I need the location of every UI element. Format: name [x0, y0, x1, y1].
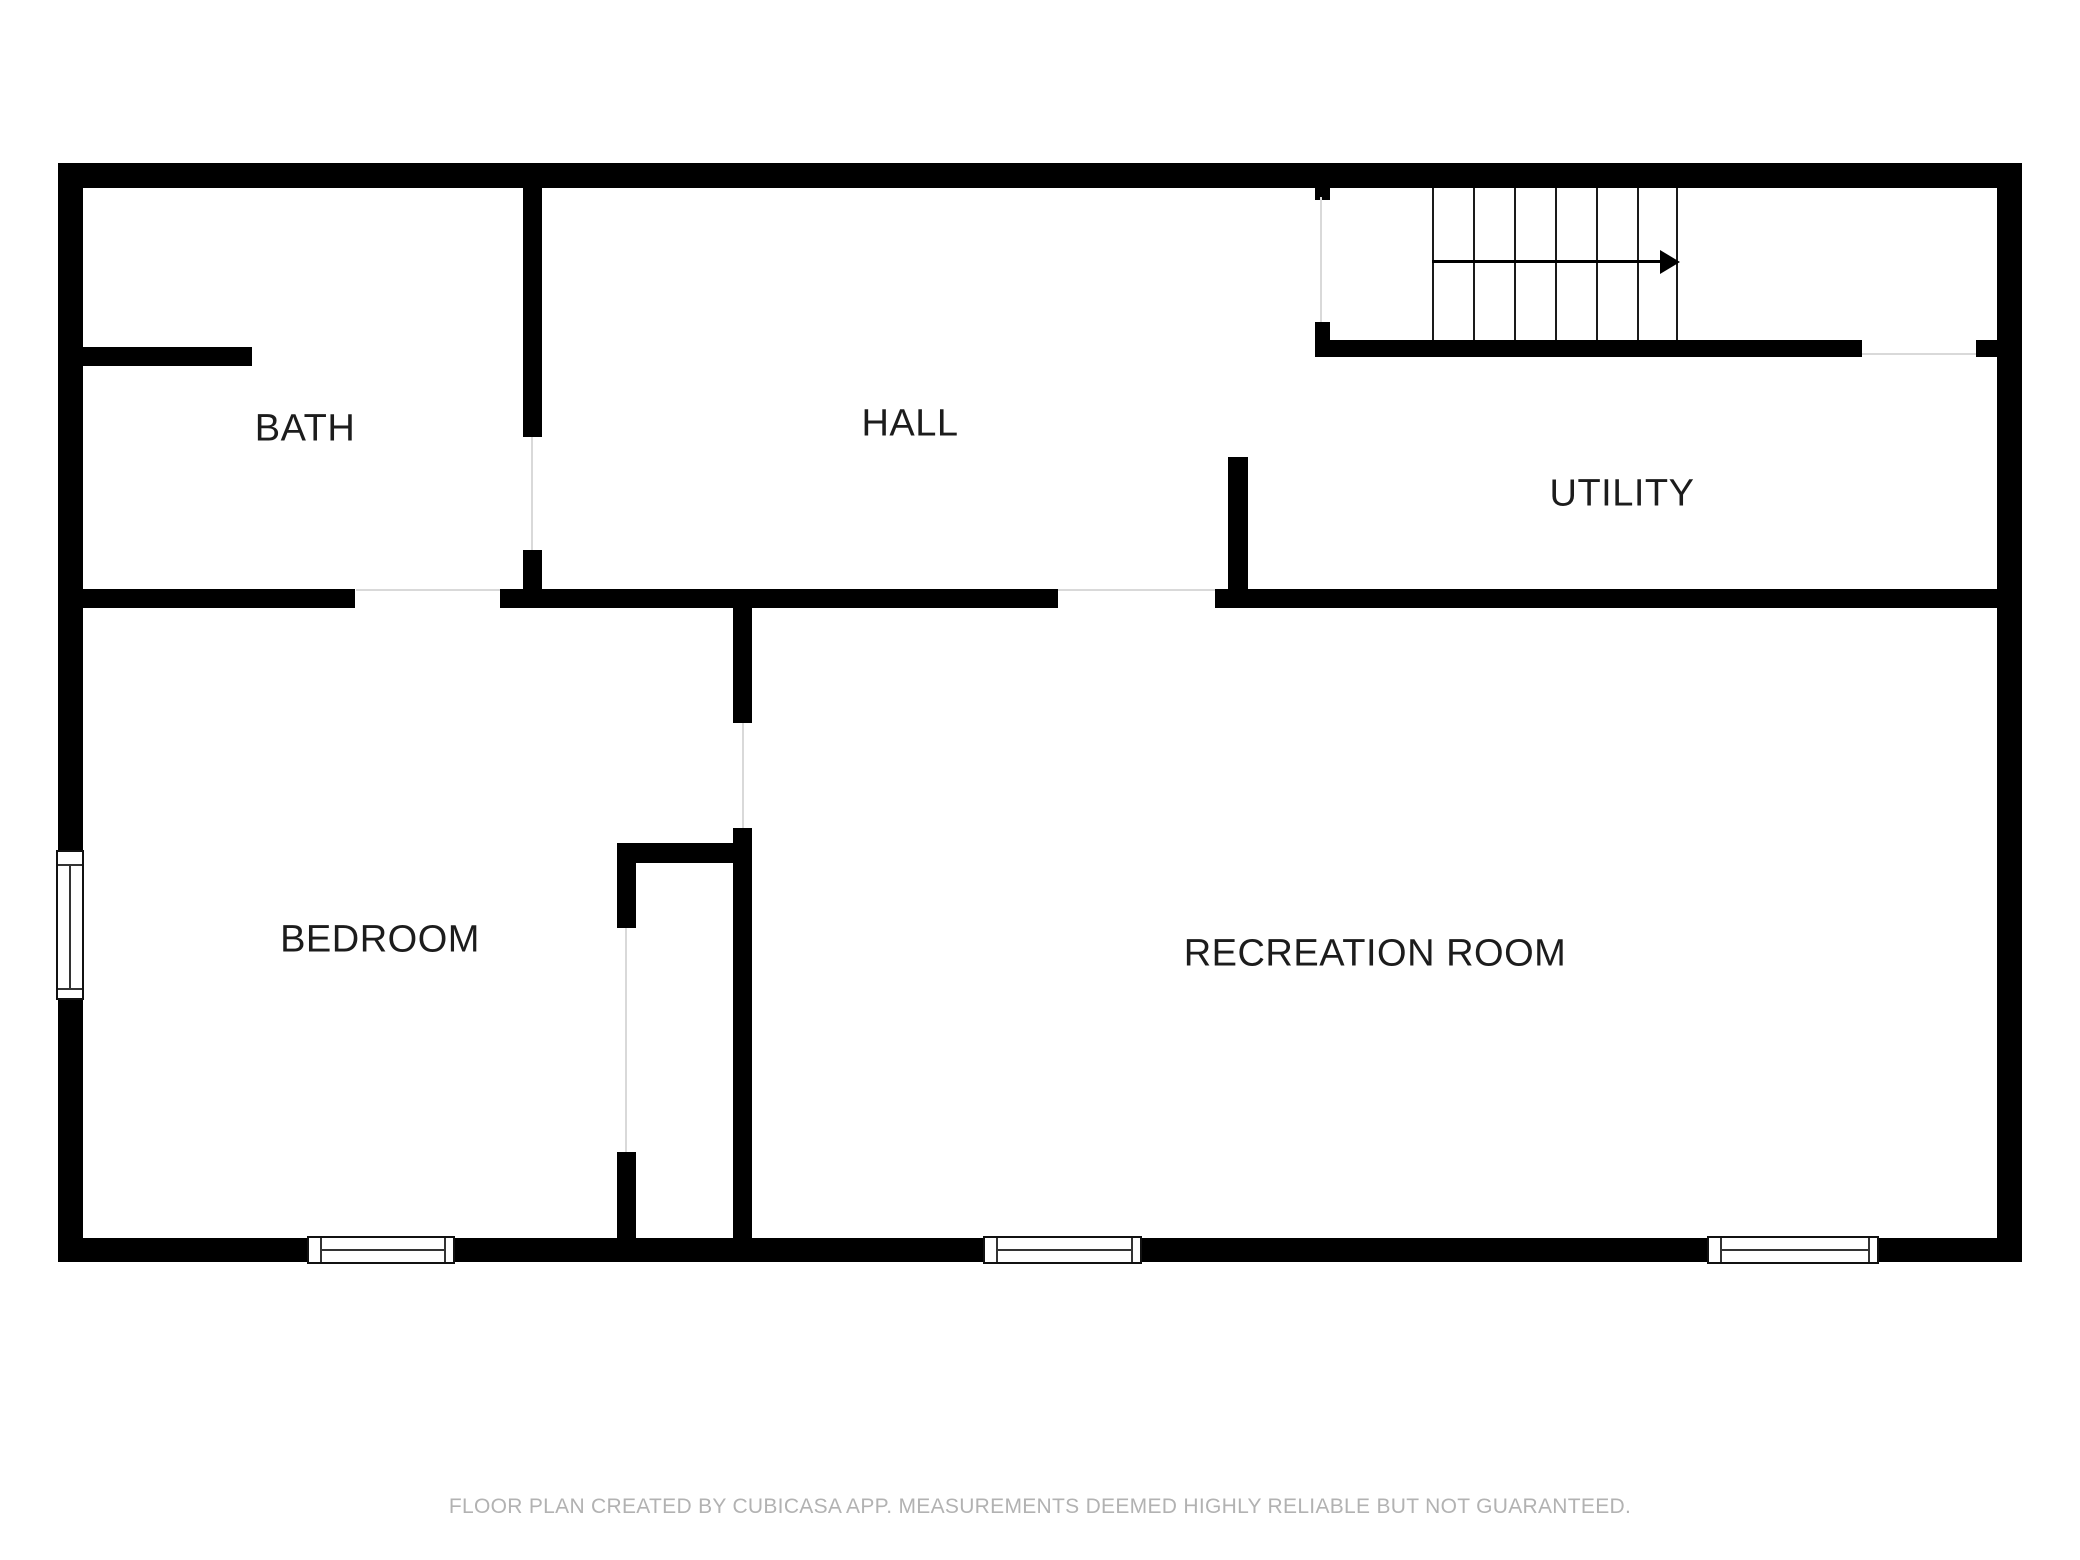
door-stair-entry: [1320, 197, 1322, 322]
footer-disclaimer: FLOOR PLAN CREATED BY CUBICASA APP. MEAS…: [449, 1495, 1631, 1519]
door-bedroom-rec-divider: [742, 723, 744, 828]
wall-stair-bottom-right-piece: [1976, 340, 1997, 357]
window-center-line: [69, 866, 71, 988]
window-recreation-bottom-left: [983, 1236, 1142, 1264]
door-stair-landing: [1862, 353, 1976, 355]
wall-closet-left-lower: [617, 1152, 636, 1238]
right-arrow-icon: [1660, 250, 1680, 274]
wall-exterior-top: [58, 163, 2022, 188]
wall-exterior-bottom-3: [1142, 1238, 1707, 1262]
window-center-line: [1722, 1249, 1868, 1251]
wall-hall-utility-stub: [1228, 457, 1248, 589]
wall-bath-stub: [83, 347, 252, 366]
room-label-bath: BATH: [255, 408, 356, 451]
stair-direction-arrow-shaft: [1432, 260, 1662, 263]
wall-mid-bath-segment: [83, 589, 355, 608]
wall-exterior-bottom-1: [58, 1238, 307, 1262]
wall-exterior-left-lower: [58, 1000, 83, 1238]
window-recreation-bottom-right: [1707, 1236, 1879, 1264]
wall-mid-hall-segment: [500, 589, 1058, 608]
window-bedroom-bottom: [307, 1236, 455, 1264]
wall-stair-left-lower-stub: [1315, 322, 1330, 340]
door-closet: [625, 928, 627, 1152]
room-label-hall: HALL: [861, 403, 958, 446]
stair-tread-line: [1637, 188, 1639, 340]
wall-bath-hall-divider-upper: [523, 188, 542, 437]
wall-closet-top: [617, 843, 752, 863]
wall-exterior-bottom-4: [1879, 1238, 2022, 1262]
window-cap-line: [1868, 1238, 1870, 1262]
window-center-line: [998, 1249, 1131, 1251]
window-bedroom-left: [56, 850, 84, 1000]
room-label-utility: UTILITY: [1550, 473, 1695, 516]
wall-stair-left-upper-stub: [1315, 188, 1330, 200]
door-bath-hall-divider: [531, 437, 533, 550]
window-cap-line: [444, 1238, 446, 1262]
wall-exterior-right: [1997, 188, 2022, 1238]
room-label-bedroom: BEDROOM: [280, 919, 480, 962]
stair-tread-line: [1514, 188, 1516, 340]
door-hall-to-rec: [1058, 589, 1215, 591]
wall-mid-utility-segment: [1215, 589, 1997, 608]
stair-tread-line: [1555, 188, 1557, 340]
room-label-recreation-room: RECREATION ROOM: [1184, 933, 1567, 976]
wall-closet-left-upper: [617, 863, 636, 928]
wall-bath-hall-divider-lower: [523, 550, 542, 589]
door-bath: [356, 589, 500, 591]
wall-exterior-left-upper: [58, 188, 83, 850]
stair-tread-line: [1596, 188, 1598, 340]
window-center-line: [322, 1249, 444, 1251]
stair-tread-line: [1432, 188, 1434, 340]
window-cap-line: [58, 988, 82, 990]
window-cap-line: [1131, 1238, 1133, 1262]
wall-stair-bottom: [1315, 340, 1862, 357]
wall-bedroom-rec-divider-upper: [733, 608, 752, 723]
wall-exterior-bottom-2: [455, 1238, 983, 1262]
wall-bedroom-rec-divider-lower: [733, 828, 752, 1238]
stair-tread-line: [1473, 188, 1475, 340]
staircase: [1432, 188, 1678, 340]
floor-plan-canvas: BATH HALL UTILITY BEDROOM RECREATION ROO…: [0, 0, 2080, 1560]
